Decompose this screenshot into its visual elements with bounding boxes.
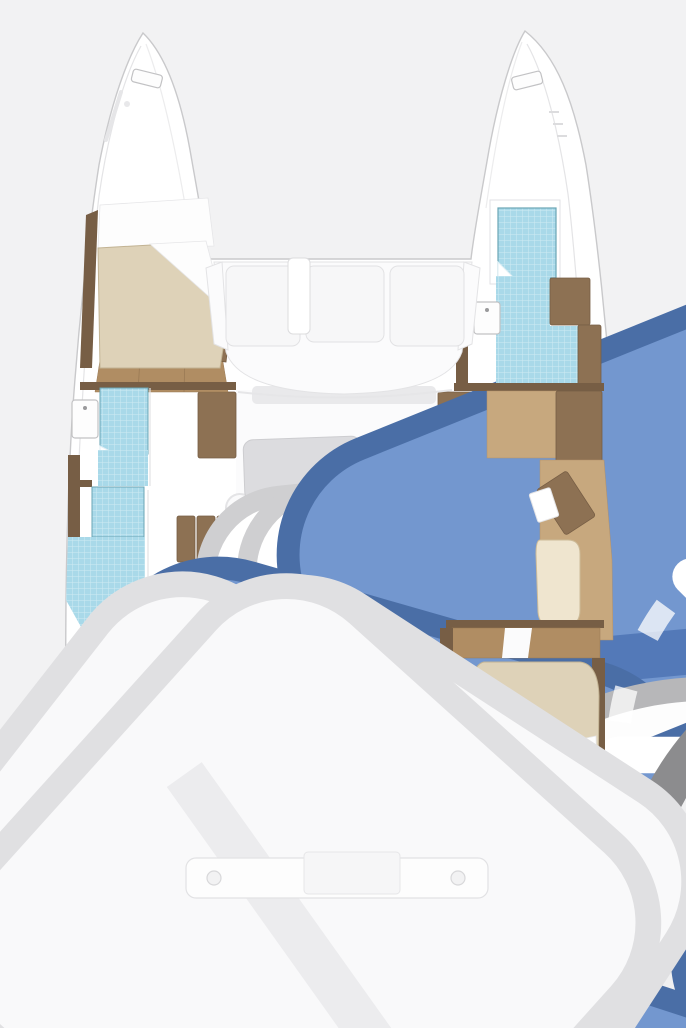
desk-seat [536, 540, 580, 626]
bulkhead-wall [446, 620, 604, 628]
corridor-sole [487, 391, 557, 458]
deck-fitting-icon [124, 101, 130, 107]
stair-step [177, 516, 195, 562]
bathroom-cabinet [550, 278, 590, 325]
shower-stall [498, 208, 556, 278]
bench-fitting-icon [451, 871, 465, 885]
washbasin [72, 400, 98, 438]
bathroom-cabinet [578, 325, 601, 387]
faucet-icon [83, 406, 87, 410]
bulkhead-wall [454, 383, 604, 391]
aft-bench-center-step [304, 852, 400, 894]
sofa-armrest-table [288, 258, 310, 334]
catamaran-floor-plan [0, 0, 686, 1028]
side-locker [68, 455, 80, 540]
faucet-icon [485, 308, 489, 312]
floor-plan-canvas [0, 0, 686, 1028]
washbasin [474, 302, 500, 334]
bench-fitting-icon [207, 871, 221, 885]
sofa-back-cushion [390, 266, 464, 346]
sofa-back-cushion [306, 266, 384, 342]
shower-stall [92, 487, 144, 537]
aft-bench [186, 852, 488, 898]
cabin-door-opening [502, 628, 532, 658]
shower-stall [100, 388, 148, 454]
bathroom-tile-floor [98, 450, 148, 486]
